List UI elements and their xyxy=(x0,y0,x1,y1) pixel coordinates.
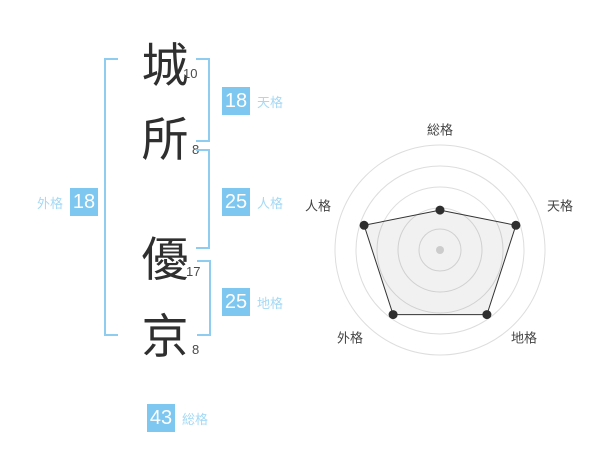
radar-data-point xyxy=(389,310,398,319)
radar-axis-label: 総格 xyxy=(427,122,453,137)
radar-data-point xyxy=(511,221,520,230)
radar-data-point xyxy=(360,221,369,230)
radar-axis-label: 人格 xyxy=(305,198,331,213)
fortune-radar-chart: 総格天格地格外格人格 xyxy=(0,0,600,470)
radar-data-polygon xyxy=(364,210,516,315)
name-analysis-panel: 城 所 優 京 10 8 17 8 18 天格 25 人格 25 地格 外格 1… xyxy=(0,0,600,470)
radar-center-dot xyxy=(436,246,444,254)
radar-axis-label: 天格 xyxy=(547,198,573,213)
radar-data-point xyxy=(436,206,445,215)
radar-data-point xyxy=(482,310,491,319)
radar-axis-label: 外格 xyxy=(337,330,363,345)
radar-axis-label: 地格 xyxy=(511,330,537,345)
